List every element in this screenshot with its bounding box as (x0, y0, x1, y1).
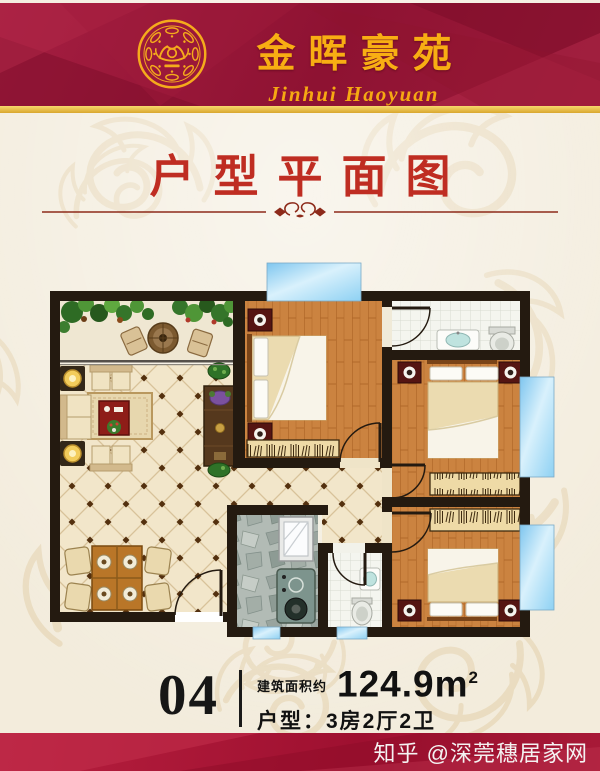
area-number: 124.9m (337, 663, 469, 704)
stove-unit-icon (277, 569, 315, 623)
glass-unit-icon (279, 517, 313, 561)
corridor-floor (322, 505, 392, 545)
wardrobe-icon (430, 509, 520, 531)
layout-value: 3房2厅2卫 (326, 710, 436, 733)
window-icon (253, 627, 280, 639)
info-divider (239, 670, 242, 727)
brand-subtitle: Jinhui Haoyuan (224, 82, 484, 107)
hallway-floor (233, 468, 392, 505)
floor-plan (40, 256, 560, 648)
brand-block: 金晖豪苑 Jinhui Haoyuan (224, 23, 484, 107)
footer-bar: 知乎 @深莞穗居家网 (0, 733, 600, 771)
window-icon (337, 627, 367, 639)
watermark: 知乎 @深莞穗居家网 (374, 736, 588, 768)
layout-label: 户型： (257, 710, 326, 733)
area-value: 124.9m2 (337, 660, 479, 702)
balcony-glass-line (60, 360, 233, 365)
window-icon (520, 377, 554, 477)
wardrobe-icon (247, 440, 339, 457)
patio-table-icon (148, 323, 178, 353)
unit-info: 04 建筑面积约 124.9m2 户型：3房2厅2卫 (0, 664, 600, 736)
brand-logo-icon (134, 16, 210, 92)
bathroom1-fixtures (437, 327, 515, 354)
window-icon (267, 263, 361, 301)
header-banner: 金晖豪苑 Jinhui Haoyuan (0, 3, 600, 106)
wardrobe-icon (430, 473, 520, 495)
toilet-icon (352, 598, 372, 625)
toilet-icon (489, 327, 515, 354)
tv-cabinet-icon (204, 386, 236, 466)
area-exponent: 2 (469, 668, 479, 687)
window-icon (520, 525, 554, 610)
ornamental-divider (40, 200, 560, 224)
floorplan-poster: 金晖豪苑 Jinhui Haoyuan 户型平面图 (0, 0, 600, 771)
area-line: 建筑面积约 124.9m2 (257, 664, 479, 702)
layout-spec: 户型：3房2厅2卫 (257, 705, 479, 735)
gold-divider-stripe (0, 106, 600, 113)
section-title: 户型平面图 (0, 140, 600, 205)
brand-title: 金晖豪苑 (224, 23, 484, 79)
kitchen-fixtures (277, 517, 315, 623)
unit-details: 建筑面积约 124.9m2 户型：3房2厅2卫 (257, 664, 479, 735)
unit-number: 04 (158, 666, 219, 726)
area-label: 建筑面积约 (257, 676, 327, 695)
coffee-table-icon (99, 401, 129, 435)
